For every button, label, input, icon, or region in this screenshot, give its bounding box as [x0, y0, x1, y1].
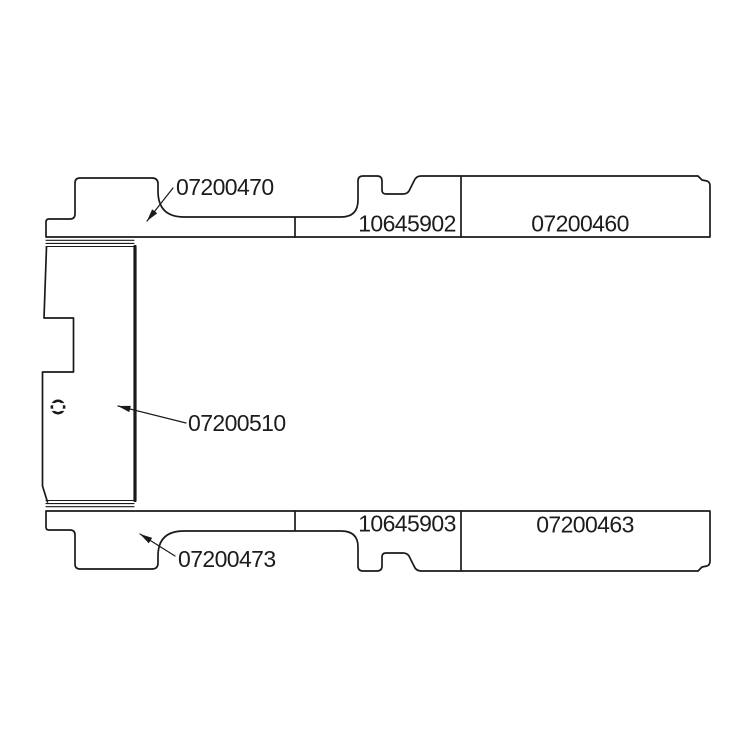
part-label-side-panel: 07200510: [188, 412, 286, 435]
top-hatch-band: [46, 240, 134, 246]
part-label-bottom-right: 07200463: [536, 514, 634, 537]
side-panel-outline: [43, 247, 74, 502]
leader-line-side-panel: [118, 406, 186, 423]
parts-drawing: [0, 0, 750, 750]
part-label-top-left: 07200470: [176, 176, 274, 199]
part-label-top-right: 07200460: [531, 213, 629, 236]
part-label-bottom-middle: 10645903: [358, 513, 456, 536]
diagram-canvas: 07200470 10645902 07200460 07200510 0720…: [0, 0, 750, 750]
part-label-top-middle: 10645902: [358, 213, 456, 236]
leader-line-top-left: [147, 188, 173, 221]
bottom-hatch-band: [46, 501, 134, 507]
fastener-clip-icon: [50, 401, 67, 413]
part-label-bottom-left: 07200473: [178, 548, 276, 571]
